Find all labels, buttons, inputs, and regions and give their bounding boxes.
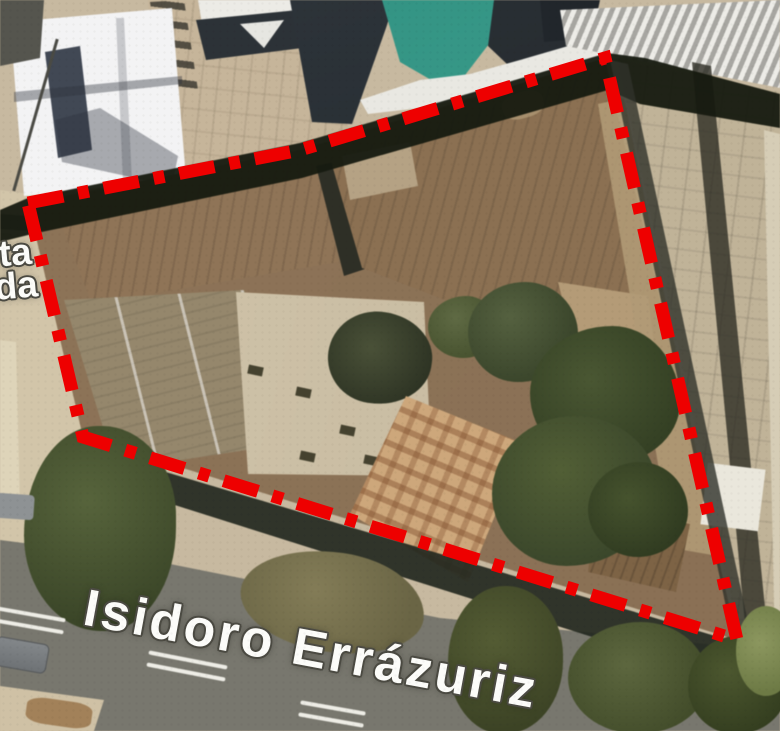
tree [588,462,688,557]
roadside-object [0,493,35,521]
left-street-label-line2: da [0,267,39,304]
satellite-map-canvas[interactable]: ta da Isidoro Errázuriz [0,0,780,731]
left-street-label: ta da [0,234,39,303]
tree [568,622,708,731]
